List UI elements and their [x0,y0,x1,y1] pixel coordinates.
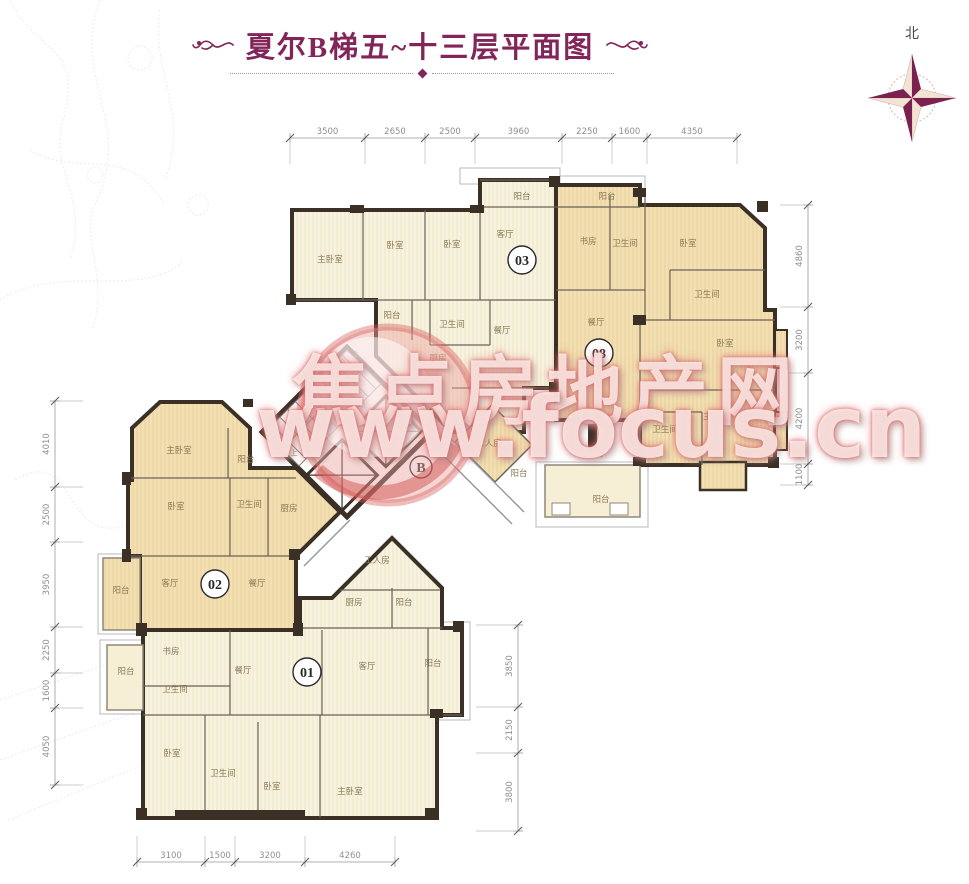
room-label: 餐厅 [234,666,252,676]
dimension-chain-mid_right: 385021503800 [476,621,523,835]
unit-badge: 02 [201,570,229,598]
dimension-chain-left: 401025003950225016004050 [42,397,83,789]
dimension-label: 3850 [505,655,515,677]
unit-badge-label: 01 [300,666,314,681]
room-label: 卧室 [679,238,697,249]
room-label: 卧室 [263,781,281,792]
room-label: 餐厅 [493,326,511,336]
dimension-chain-bottom: 3100150032004260 [133,836,399,867]
room-label: 客厅 [496,229,514,240]
room-label: 卧室 [716,338,734,349]
dimension-label: 2500 [42,504,52,526]
dimension-label: 2250 [576,127,598,137]
room-label: 主卧室 [703,411,729,422]
dimension-label: 2250 [42,639,52,661]
dimension-label: 2650 [384,127,406,137]
room-label: 卫生间 [236,499,262,510]
room-label: 卧室 [386,240,404,251]
floorplan-page: 夏尔B梯五~十三层平面图 北 [0,0,969,884]
unit-badge: 08 [585,339,613,367]
room-label: 卧室 [167,501,185,512]
dimension-label: 4010 [42,433,52,455]
unit-badge-label: 02 [208,578,222,593]
room-label: 餐厅 [248,579,266,589]
room-label: 阳台 [510,468,527,479]
dimension-label: 3100 [160,851,182,861]
room-label: 上 [353,349,360,358]
unit-badge-label: 03 [515,254,529,269]
room-label: 工人房 [364,555,390,566]
room-label: 书房 [579,236,596,247]
room-label: 卫生间 [652,424,678,435]
room-label: 阳台 [513,191,530,202]
room-label: 上 [291,448,298,457]
room-label: 主卧室 [337,786,363,797]
room-label: 厨房 [345,597,362,608]
room-label: 卫生间 [210,768,236,779]
dimension-label: 4260 [339,851,361,861]
room-label: 阳台 [237,454,254,465]
unit-badge-label: 08 [592,347,606,362]
room-label: 主卧室 [317,254,343,265]
room-label: 客厅 [358,661,376,672]
room-label: 阳台 [383,310,400,321]
room-label: 客厅 [588,448,606,459]
room-label: 卫生间 [162,684,188,695]
dimension-label: 4200 [795,408,805,430]
room-label: 主卧室 [166,445,192,456]
room-label: 阳台 [117,666,134,677]
room-label: 阳台 [395,597,412,608]
room-label: 卧室 [163,748,181,759]
unit-08-outline [545,185,787,517]
dimension-label: 4860 [795,245,805,267]
dimension-label: 1600 [619,127,641,137]
room-label: 阳台 [592,494,609,505]
unit-badge: B [410,456,432,478]
dimension-label: 2150 [505,719,515,741]
dimension-label: 3200 [795,329,805,351]
room-label: 工人房 [476,438,502,449]
dimension-label: 1600 [42,680,52,702]
dimension-label: 4050 [42,736,52,758]
room-label: 客厅 [161,578,179,589]
dimension-label: 4350 [681,127,703,137]
room-label: 卫生间 [612,238,638,249]
room-label: 厨房 [429,353,446,364]
room-label: 书房 [162,646,179,657]
unit-badge-label: B [416,461,425,476]
room-label: 阳台 [112,585,129,596]
unit-badge: 01 [293,658,321,686]
room-label: 卧室 [443,239,461,250]
dimension-label: 3800 [505,781,515,803]
room-label: 阳台 [424,658,441,669]
dimension-label: 3950 [42,574,52,596]
room-label: 卫生间 [694,289,720,300]
dimension-label: 1100 [795,464,805,486]
room-label: 阳台 [598,191,615,202]
room-label: 厨房 [280,503,297,514]
dimension-label: 2500 [439,127,461,137]
dimension-label: 3960 [508,127,530,137]
floorplan-drawing: 3500265025003960225016004350310015003200… [0,0,969,884]
unit-badge: 03 [508,246,536,274]
dimension-chain-top: 3500265025003960225016004350 [286,127,741,164]
room-label: 卫生间 [439,319,465,330]
dimension-label: 3200 [259,851,281,861]
dimension-label: 3500 [317,127,339,137]
dimension-label: 1500 [209,851,231,861]
room-label: 餐厅 [587,318,605,328]
